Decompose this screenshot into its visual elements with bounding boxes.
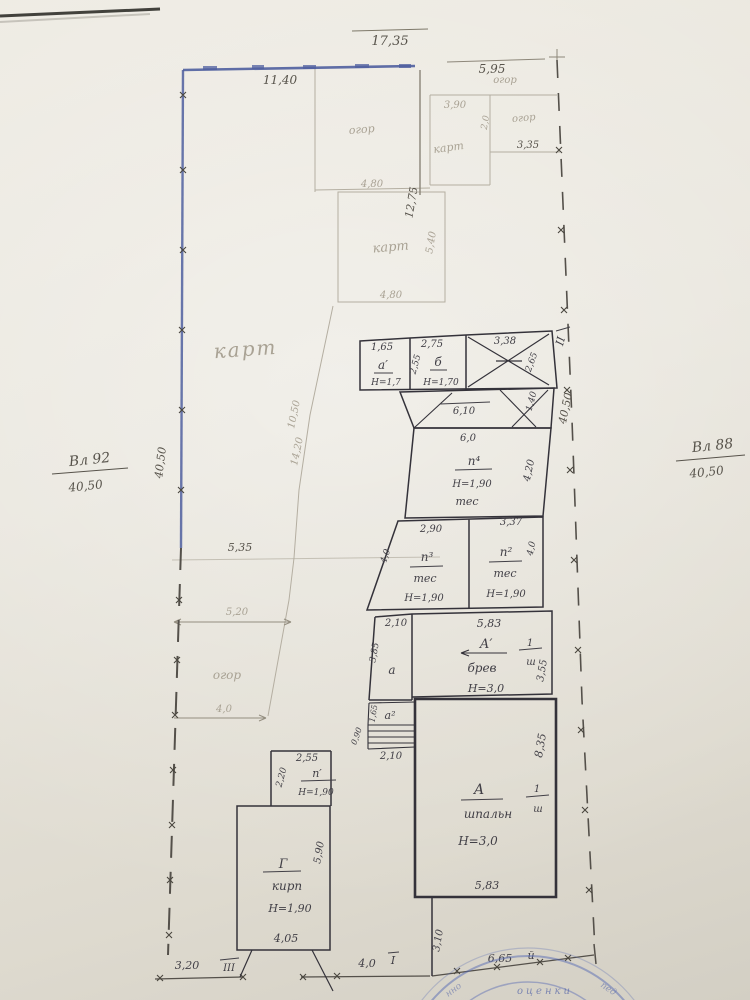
- round-stamp: оценки нно пед: [394, 948, 662, 1000]
- garden-label-e: огор: [512, 112, 537, 125]
- p1-width: 2,55: [295, 753, 318, 764]
- p3-depth: 4,0: [379, 548, 393, 566]
- A1-depth: 3,55: [535, 659, 550, 683]
- dim-north-right: 5,95: [479, 62, 506, 76]
- stamp-word: оценки: [517, 986, 573, 997]
- shed-a1-width: 1,65: [371, 342, 393, 353]
- boundary-tick-marks: [157, 92, 592, 981]
- dim-south-3-20: 3,20: [175, 959, 200, 972]
- G-depth: 5,90: [312, 840, 327, 864]
- dim-5-35: 5,35: [228, 541, 253, 554]
- G-material: кирп: [272, 879, 302, 893]
- shed-open-depth: 2,65: [524, 351, 541, 374]
- blue-boundary: [181, 66, 415, 548]
- marker-II: II: [553, 335, 568, 348]
- label-bars: [52, 327, 745, 960]
- A1-storeys-material: ш: [526, 657, 535, 668]
- owner-east-length: 40,50: [688, 463, 725, 481]
- scanned-plot-plan: 17,35 11,40 5,95 огор огор 3,90 карт 2,0…: [0, 0, 750, 1000]
- marker-III: III: [222, 963, 236, 974]
- garden-label-n: огор: [348, 122, 375, 137]
- kart-box-bottom: 4,80: [379, 290, 403, 301]
- plan-labels: 17,35 11,40 5,95 огор огор 3,90 карт 2,0…: [67, 34, 734, 974]
- strip-width: 6,10: [453, 406, 476, 417]
- A1-label: А′: [479, 637, 493, 652]
- shed-b-width: 2,75: [420, 339, 443, 350]
- p3-material: тес: [413, 572, 436, 585]
- A1-material: брев: [467, 661, 496, 675]
- A1-storeys: 1: [527, 638, 533, 649]
- dim-small-plot: 3,90: [444, 100, 467, 111]
- p4-height: Н=1,90: [451, 479, 492, 490]
- p3-width: 2,90: [419, 524, 443, 535]
- shed-b-height: Н=1,70: [422, 378, 459, 388]
- plan-drawing: 17,35 11,40 5,95 огор огор 3,90 карт 2,0…: [0, 0, 750, 1000]
- stamp-arc-right: пед: [598, 981, 618, 999]
- A-label: А: [473, 782, 485, 798]
- p4-width: 6,0: [460, 433, 477, 444]
- shed-b-label: б: [434, 355, 442, 369]
- owner-west-length: 40,50: [67, 477, 104, 495]
- garden-label-ne: огор: [493, 75, 517, 86]
- kart-big-label: карт: [213, 335, 278, 363]
- dim-south-4-0: 4,0: [357, 957, 376, 970]
- p3-height: Н=1,90: [403, 593, 444, 604]
- owner-west-name: Вл 92: [67, 450, 111, 470]
- dim-3-35: 3,35: [517, 140, 539, 151]
- dim-east-boundary: 40,50: [556, 392, 575, 426]
- dashed-boundaries: [155, 60, 596, 979]
- p4-depth: 4,20: [522, 458, 538, 484]
- a2-width: 2,10: [379, 751, 403, 762]
- dim-4-0-w: 4,0: [215, 704, 233, 715]
- A-storeys-material: ш: [533, 804, 542, 815]
- kart-box-label: карт: [372, 238, 409, 256]
- owner-east-name: Вл 88: [690, 436, 734, 456]
- kart-box-top: 4,80: [360, 179, 384, 190]
- A-south-offset: 3,10: [431, 928, 446, 952]
- garden-label-w: огор: [213, 668, 242, 682]
- A1-height: Н=3,0: [467, 682, 504, 695]
- p2-label: п²: [500, 545, 513, 559]
- p1-depth: 2,20: [274, 766, 289, 789]
- G-height: Н=1,90: [267, 902, 311, 915]
- A-height: Н=3,0: [457, 834, 498, 848]
- p4-material: тес: [455, 495, 478, 508]
- A-material: шпальн: [464, 807, 512, 821]
- p1-height: Н=1,90: [297, 788, 334, 798]
- A-width: 5,83: [475, 879, 500, 892]
- shed-a1-height: Н=1,7: [370, 378, 401, 388]
- p1-label: п′: [312, 767, 322, 780]
- paper-edge-artifact: [0, 9, 160, 22]
- marker-I: I: [390, 954, 396, 967]
- p2-width: 3,37: [500, 517, 523, 528]
- a2-label: а²: [385, 709, 396, 722]
- dim-12-75: 12,75: [402, 186, 420, 219]
- A-storeys: 1: [534, 784, 540, 795]
- dim-west-boundary: 40,50: [152, 446, 169, 480]
- p4-label: п⁴: [468, 454, 481, 468]
- a2-depth: 1,65: [368, 704, 380, 723]
- porch-a-depth: 3,85: [368, 642, 381, 664]
- p2-material: тес: [493, 567, 516, 580]
- shed-a1-label: а′: [378, 358, 388, 372]
- porch-a-width: 2,10: [384, 618, 408, 629]
- shed-open-width: 3,38: [494, 336, 516, 347]
- p2-height: Н=1,90: [485, 589, 526, 600]
- G-label: Г: [278, 857, 288, 872]
- kart-small-label: карт: [432, 139, 464, 156]
- dim-north-left: 11,40: [263, 73, 298, 87]
- p2-depth: 4,0: [525, 540, 538, 557]
- G-width: 4,05: [273, 932, 299, 945]
- A1-width: 5,83: [477, 617, 502, 630]
- p3-label: п³: [421, 550, 434, 564]
- a2-steps-depth: 0,90: [349, 726, 364, 746]
- stamp-arc-left: нно: [444, 981, 464, 1000]
- dim-5-40: 5,40: [424, 230, 439, 254]
- dim-north-total: 17,35: [371, 34, 408, 49]
- porch-a-label: а: [388, 663, 395, 677]
- dim-5-20: 5,20: [226, 607, 249, 618]
- A-depth: 8,35: [532, 732, 549, 758]
- dim-diag-10-50: 10,50: [286, 399, 303, 430]
